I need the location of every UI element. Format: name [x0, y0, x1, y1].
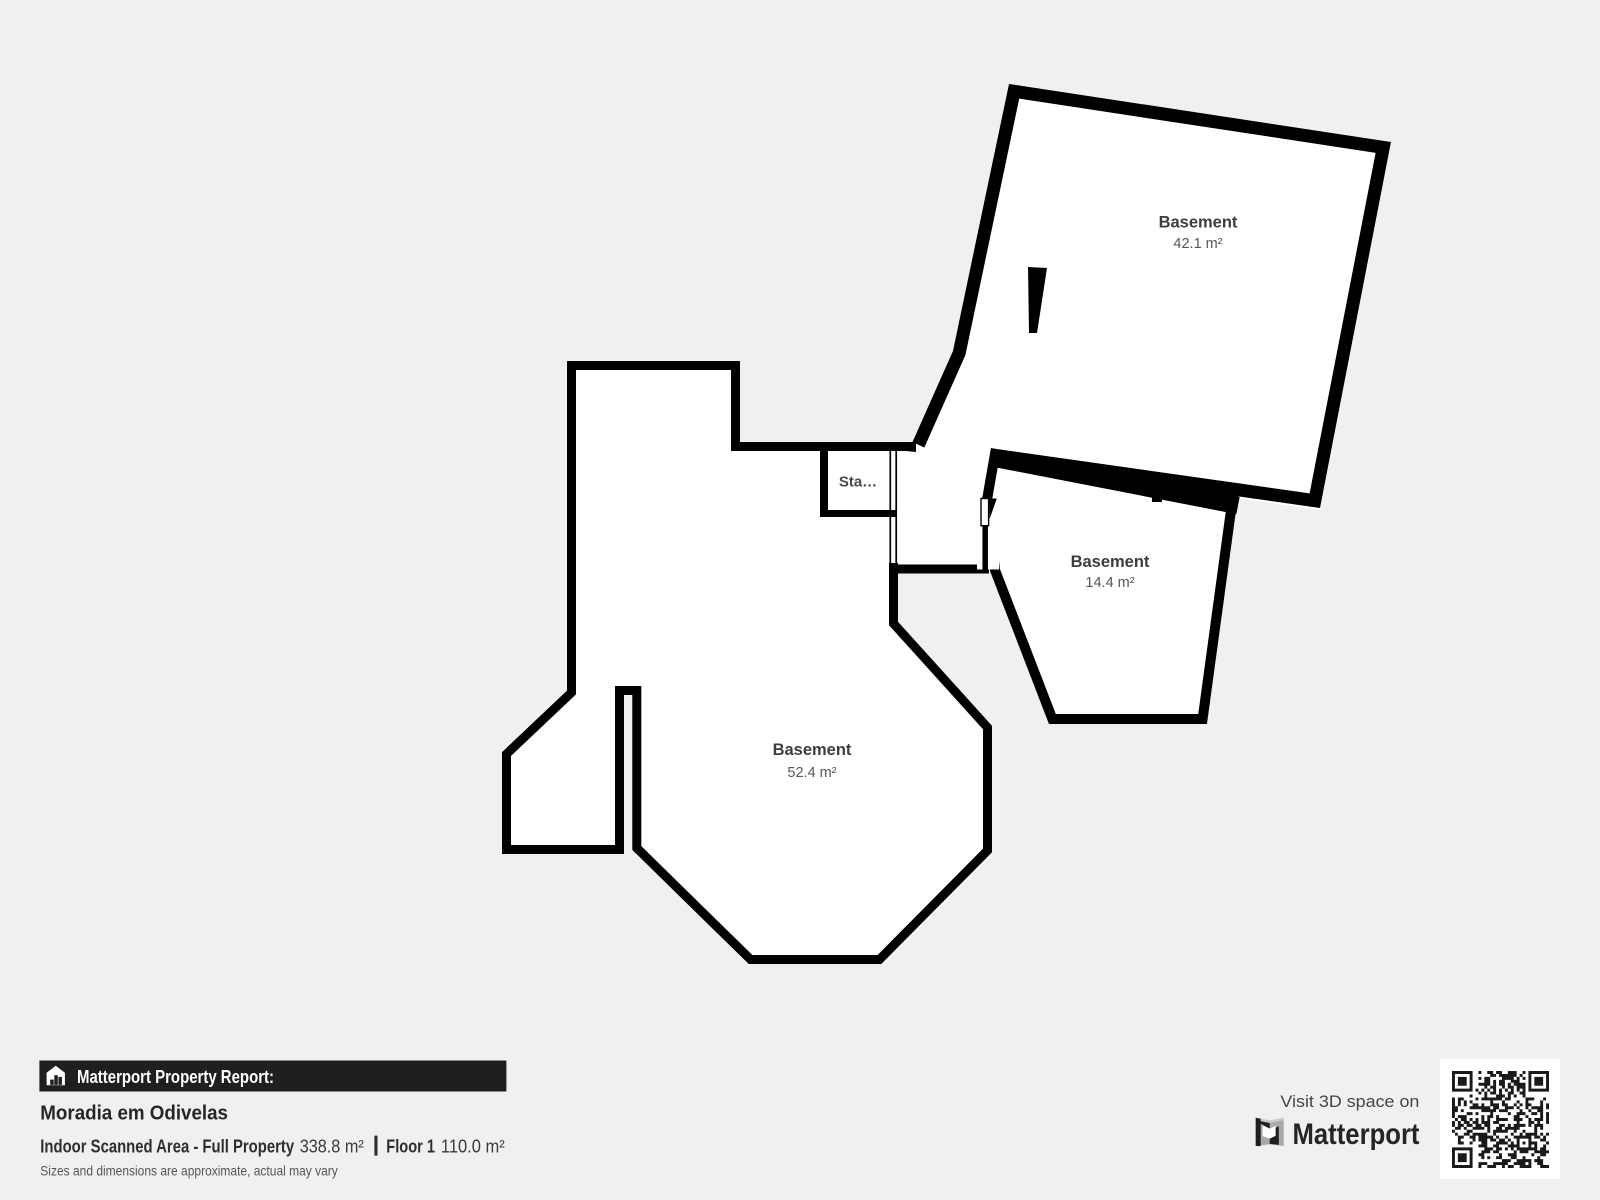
- svg-text:Indoor Scanned Area - Full Pro: Indoor Scanned Area - Full Property: [40, 1137, 294, 1157]
- svg-text:338.8 m²: 338.8 m²: [300, 1137, 364, 1157]
- svg-text:Visit 3D space on: Visit 3D space on: [1280, 1092, 1419, 1111]
- svg-text:Matterport Property Report:: Matterport Property Report:: [77, 1067, 274, 1087]
- svg-text:Floor 1: Floor 1: [386, 1137, 435, 1157]
- svg-text:Sizes and dimensions are appro: Sizes and dimensions are approximate, ac…: [40, 1162, 338, 1178]
- svg-text:Matterport: Matterport: [1293, 1118, 1420, 1151]
- svg-text:110.0 m²: 110.0 m²: [441, 1137, 505, 1157]
- svg-text:Moradia em Odivelas: Moradia em Odivelas: [40, 1103, 228, 1125]
